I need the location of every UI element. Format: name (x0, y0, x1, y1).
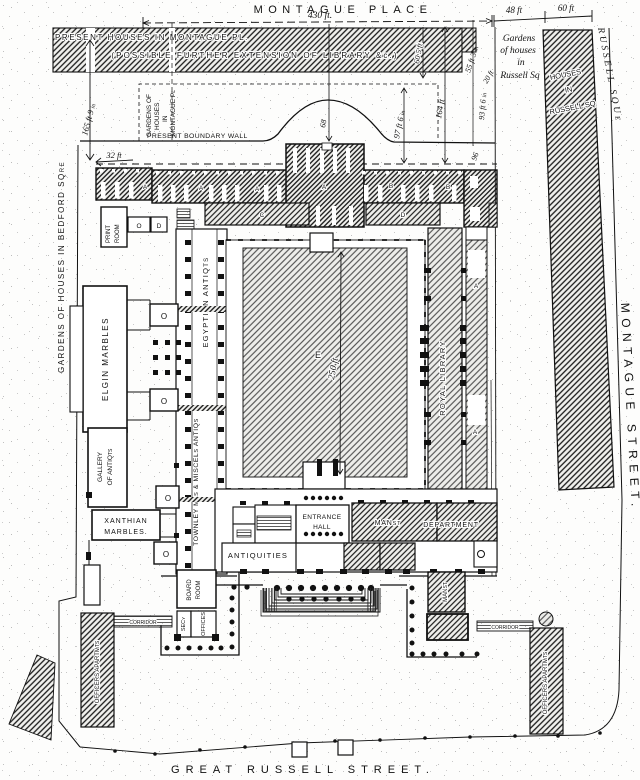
svg-text:D: D (157, 223, 162, 230)
svg-text:O: O (163, 550, 169, 559)
svg-text:ELGIN MARBLES: ELGIN MARBLES (101, 317, 110, 401)
svg-text:TOWNLEY MLS & MISCELS ANTIQS: TOWNLEY MLS & MISCELS ANTIQS (193, 418, 200, 546)
svg-text:OFFICERS APARTMTS: OFFICERS APARTMTS (95, 640, 101, 703)
svg-text:32 ft: 32 ft (105, 150, 122, 160)
svg-text:B: B (446, 184, 450, 191)
svg-text:HOUSES: HOUSES (154, 102, 161, 130)
svg-text:BOARD: BOARD (187, 579, 193, 601)
svg-text:HALL: HALL (313, 524, 331, 531)
svg-text:O: O (165, 494, 171, 503)
svg-text:A: A (143, 184, 148, 191)
svg-text:MANST: MANST (375, 520, 402, 527)
svg-text:ENTRANCE: ENTRANCE (303, 514, 342, 521)
svg-text:OFFICERS APARTMTS: OFFICERS APARTMTS (543, 651, 549, 714)
svg-text:OFFICES: OFFICES (201, 612, 207, 636)
svg-text:Russell Sq: Russell Sq (499, 71, 540, 81)
svg-text:XANTHIAN: XANTHIAN (104, 518, 147, 525)
svg-text:A: A (255, 186, 260, 193)
svg-text:MONTAGUE PLACE: MONTAGUE PLACE (254, 4, 433, 16)
svg-text:430 ft.: 430 ft. (308, 10, 332, 21)
svg-text:60 ft: 60 ft (558, 3, 575, 13)
svg-text:A: A (473, 429, 478, 436)
svg-text:MANST: MANST (443, 582, 449, 602)
svg-text:IN: IN (162, 115, 169, 122)
svg-text:ROYAL LIBRARY: ROYAL LIBRARY (438, 340, 447, 416)
svg-text:B: B (389, 183, 393, 190)
svg-text:MONTAGUE PL: MONTAGUE PL (170, 90, 177, 136)
svg-text:in: in (517, 58, 525, 68)
svg-text:ROOM: ROOM (115, 224, 121, 243)
svg-text:CORRIDOR: CORRIDOR (129, 620, 157, 626)
svg-text:MARBLES.: MARBLES. (104, 529, 147, 536)
svg-text:EGYPTIAN ANTIQTS: EGYPTIAN ANTIQTS (201, 257, 210, 348)
svg-text:Gardens: Gardens (503, 34, 536, 44)
svg-text:48 ft: 48 ft (506, 5, 523, 15)
svg-text:O: O (136, 223, 141, 230)
svg-text:ANTIQUITIES: ANTIQUITIES (228, 551, 288, 560)
svg-text:GARDENS OF HOUSES IN BEDFORD S: GARDENS OF HOUSES IN BEDFORD SQRE (57, 161, 66, 373)
svg-text:PRESENT HOUSES IN MONTAGUE PL.: PRESENT HOUSES IN MONTAGUE PL. (55, 33, 249, 42)
svg-text:O: O (161, 397, 167, 406)
svg-text:PRESENT BOUNDARY WALL: PRESENT BOUNDARY WALL (147, 133, 248, 140)
svg-text:ROOM: ROOM (196, 581, 202, 600)
svg-text:PRINT: PRINT (106, 225, 112, 243)
svg-text:GALLERY: GALLERY (97, 451, 104, 482)
svg-text:D: D (401, 212, 406, 219)
svg-text:of houses: of houses (500, 45, 536, 56)
svg-text:A: A (199, 185, 204, 192)
svg-text:O: O (161, 312, 167, 321)
svg-text:E: E (315, 350, 321, 360)
svg-text:DEPARTMENT: DEPARTMENT (423, 522, 479, 529)
svg-text:A: A (322, 184, 327, 191)
svg-text:OF ANTIQTS: OF ANTIQTS (107, 448, 114, 485)
svg-text:CORRIDOR: CORRIDOR (491, 625, 519, 631)
svg-text:C: C (260, 212, 265, 219)
svg-text:GARDENS OF: GARDENS OF (146, 94, 153, 137)
svg-text:(POSSIBLE FURTHER EXTENSION OF: (POSSIBLE FURTHER EXTENSION OF LIBRARY &… (111, 51, 398, 60)
svg-text:A: A (474, 283, 479, 290)
svg-text:GREAT RUSSELL STREET.: GREAT RUSSELL STREET. (171, 764, 435, 776)
svg-text:68: 68 (318, 119, 328, 128)
